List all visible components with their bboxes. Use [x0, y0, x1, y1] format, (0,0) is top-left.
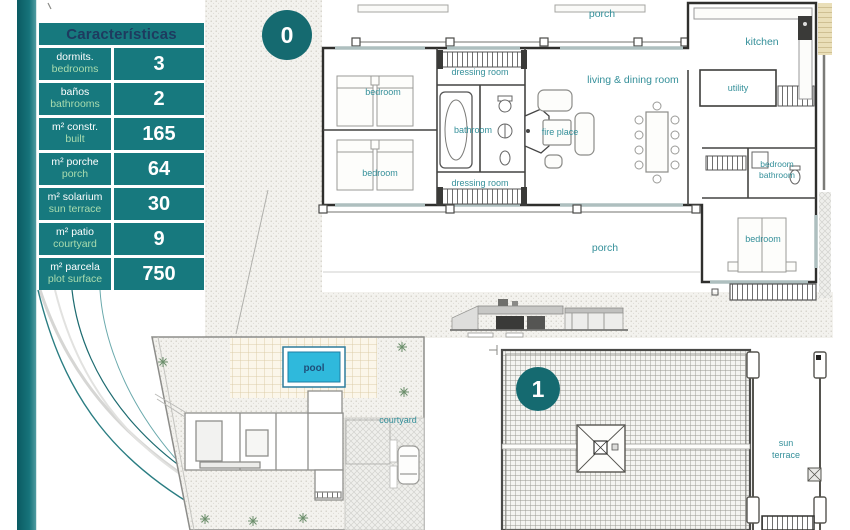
row-label: dormits. bedrooms [39, 48, 111, 80]
row-label-en: courtyard [53, 239, 97, 251]
label-bedroom-bottom: bedroom [362, 168, 398, 178]
floor-badge-upper-number: 1 [532, 376, 545, 402]
row-value: 3 [114, 48, 204, 80]
label-fireplace: fire place [542, 127, 579, 137]
label-pool: pool [303, 363, 324, 374]
table-title: Características [39, 23, 204, 45]
table-row: m² constr. built 165 [39, 118, 204, 150]
table-row: m² patio courtyard 9 [39, 223, 204, 255]
table-row: m² parcela plot surface 750 [39, 258, 204, 290]
label-terrace: terrace [772, 450, 800, 460]
row-label: m² solarium sun terrace [39, 188, 111, 220]
label-bedroom-right: bedroom [745, 234, 781, 244]
sun-terrace: sun terrace [747, 352, 826, 530]
skylight [577, 425, 625, 472]
ground-floor-plan: porch dressing room bedroom bathroom fir… [319, 3, 832, 300]
row-label: m² parcela plot surface [39, 258, 111, 290]
label-utility: utility [728, 83, 749, 93]
label-courtyard: courtyard [379, 415, 417, 425]
label-kitchen: kitchen [745, 36, 778, 48]
label-dressing-bottom: dressing room [451, 178, 508, 188]
label-porch-top: porch [589, 8, 615, 20]
floor-badge-upper: 1 [516, 367, 560, 411]
label-bathroom-small: bathroom [759, 170, 795, 180]
row-label: m² constr. built [39, 118, 111, 150]
table-row: dormits. bedrooms 3 [39, 48, 204, 80]
table-row: m² porche porch 64 [39, 153, 204, 185]
row-label: m² porche porch [39, 153, 111, 185]
pool: pool [283, 347, 345, 387]
table-row: m² solarium sun terrace 30 [39, 188, 204, 220]
row-value: 30 [114, 188, 204, 220]
row-value: 9 [114, 223, 204, 255]
floorplan-brochure-page: porch dressing room bedroom bathroom fir… [0, 0, 850, 530]
row-value: 2 [114, 83, 204, 115]
row-label-en: porch [62, 169, 88, 181]
label-bathroom: bathroom [454, 125, 492, 135]
row-label-en: bathrooms [50, 99, 100, 111]
characteristics-table: Características dormits. bedrooms 3 baño… [39, 23, 204, 290]
label-bedroom-small: bedroom [760, 159, 794, 169]
row-label-en: sun terrace [49, 204, 102, 216]
row-label: baños bathrooms [39, 83, 111, 115]
label-bedroom-top: bedroom [365, 87, 401, 97]
floor-badge-ground: 0 [262, 10, 312, 60]
site-plan: pool [152, 337, 424, 530]
row-label-en: built [65, 134, 84, 146]
row-label-en: plot surface [48, 274, 102, 286]
label-dressing-top: dressing room [451, 67, 508, 77]
row-value: 64 [114, 153, 204, 185]
label-porch-bottom: porch [592, 242, 618, 254]
row-label: m² patio courtyard [39, 223, 111, 255]
row-value: 165 [114, 118, 204, 150]
car [398, 446, 419, 484]
label-sun: sun [779, 438, 794, 448]
row-label-en: bedrooms [52, 64, 99, 76]
label-living-dining: living & dining room [587, 74, 679, 86]
floor-badge-ground-number: 0 [281, 22, 294, 48]
table-row: baños bathrooms 2 [39, 83, 204, 115]
row-value: 750 [114, 258, 204, 290]
